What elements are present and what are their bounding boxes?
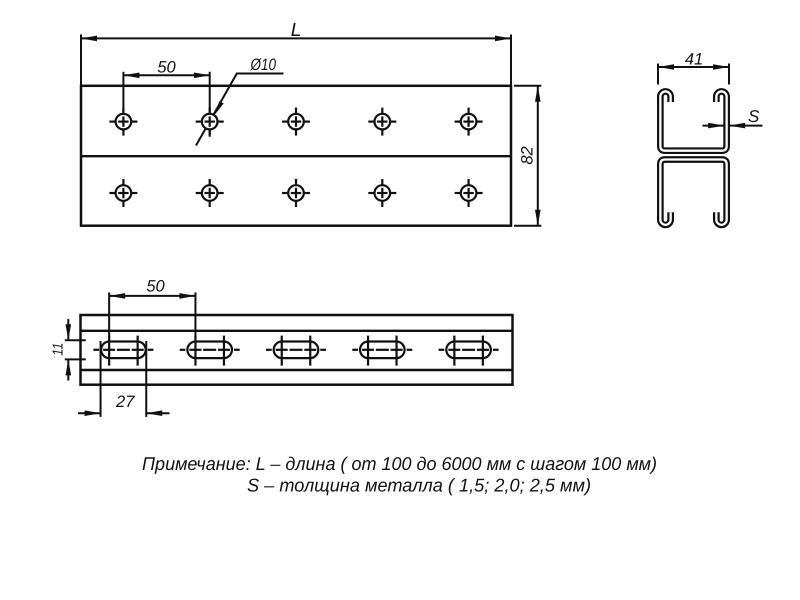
svg-text:Примечание: L – длина ( от 100: Примечание: L – длина ( от 100 до 6000 м… <box>142 453 657 474</box>
svg-text:L: L <box>291 20 302 41</box>
svg-text:50: 50 <box>157 58 176 76</box>
svg-text:82: 82 <box>519 146 537 164</box>
svg-text:27: 27 <box>115 393 135 411</box>
svg-text:S: S <box>748 107 760 126</box>
svg-text:11: 11 <box>51 343 67 356</box>
svg-text:S – толщина металла ( 1,5; 2,0: S – толщина металла ( 1,5; 2,0; 2,5 мм) <box>247 475 591 496</box>
svg-text:50: 50 <box>146 277 165 295</box>
svg-text:Ø10: Ø10 <box>250 56 277 74</box>
svg-text:41: 41 <box>685 50 703 68</box>
